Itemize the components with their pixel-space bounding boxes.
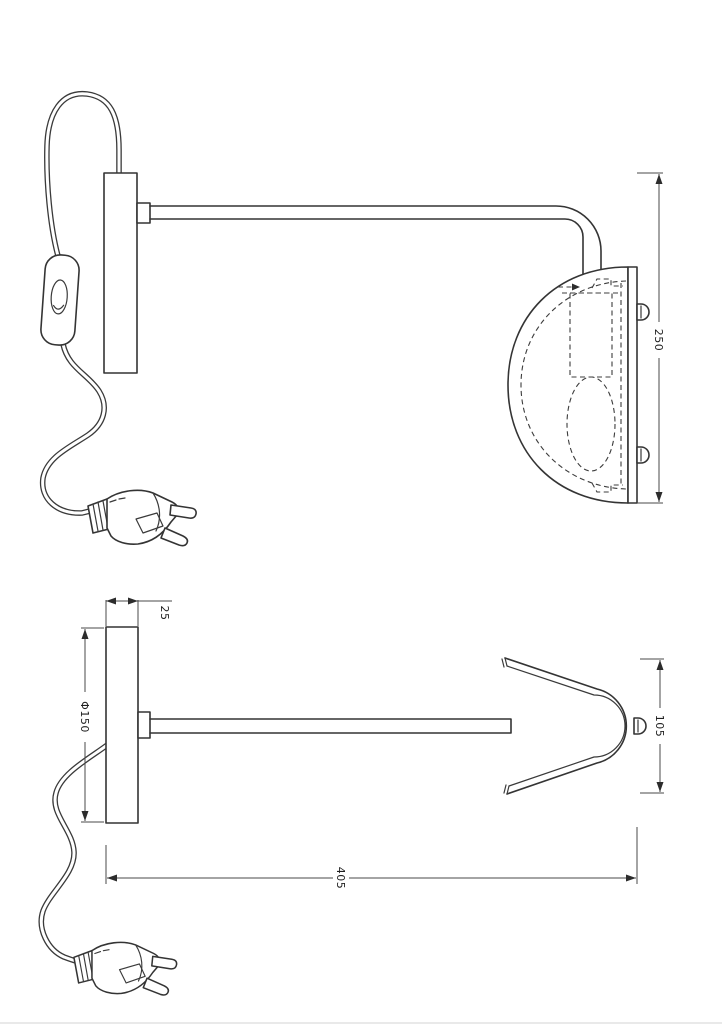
lamp-arm-plan xyxy=(150,719,511,733)
dim-label-250: 250 xyxy=(652,329,665,352)
wall-plate-side xyxy=(104,173,137,373)
inline-switch xyxy=(40,254,80,346)
arm-connector xyxy=(137,203,150,223)
wall-lamp-drawing-canvas: 250 xyxy=(0,0,722,1024)
technical-drawing-page: 250 xyxy=(0,0,722,1024)
dimension-projection-405: 405 xyxy=(106,827,637,897)
arm-connector-plan xyxy=(138,712,150,738)
dimension-diameter-150: Φ150 xyxy=(77,628,104,822)
dim-label-25: 25 xyxy=(158,606,171,621)
shade-screw-top xyxy=(637,304,649,320)
shade-screw-bottom xyxy=(637,447,649,463)
lamp-shade-side xyxy=(508,267,649,503)
plan-view: 25 Φ150 105 xyxy=(41,598,667,995)
side-elevation-view: 250 xyxy=(40,94,666,546)
dim-label-105: 105 xyxy=(653,715,666,738)
shade-screw-plan xyxy=(634,718,646,734)
power-cord-lower xyxy=(43,344,105,513)
dimension-thickness-25: 25 xyxy=(106,598,172,627)
dim-label-405: 405 xyxy=(334,867,347,890)
lamp-arm-side xyxy=(150,206,601,294)
dim-label-150: Φ150 xyxy=(78,701,91,733)
lamp-shade-plan xyxy=(502,658,646,794)
power-plug xyxy=(88,490,196,545)
power-cord-plan xyxy=(41,738,116,961)
power-plug-plan xyxy=(74,942,177,995)
wall-plate-front xyxy=(106,627,138,823)
